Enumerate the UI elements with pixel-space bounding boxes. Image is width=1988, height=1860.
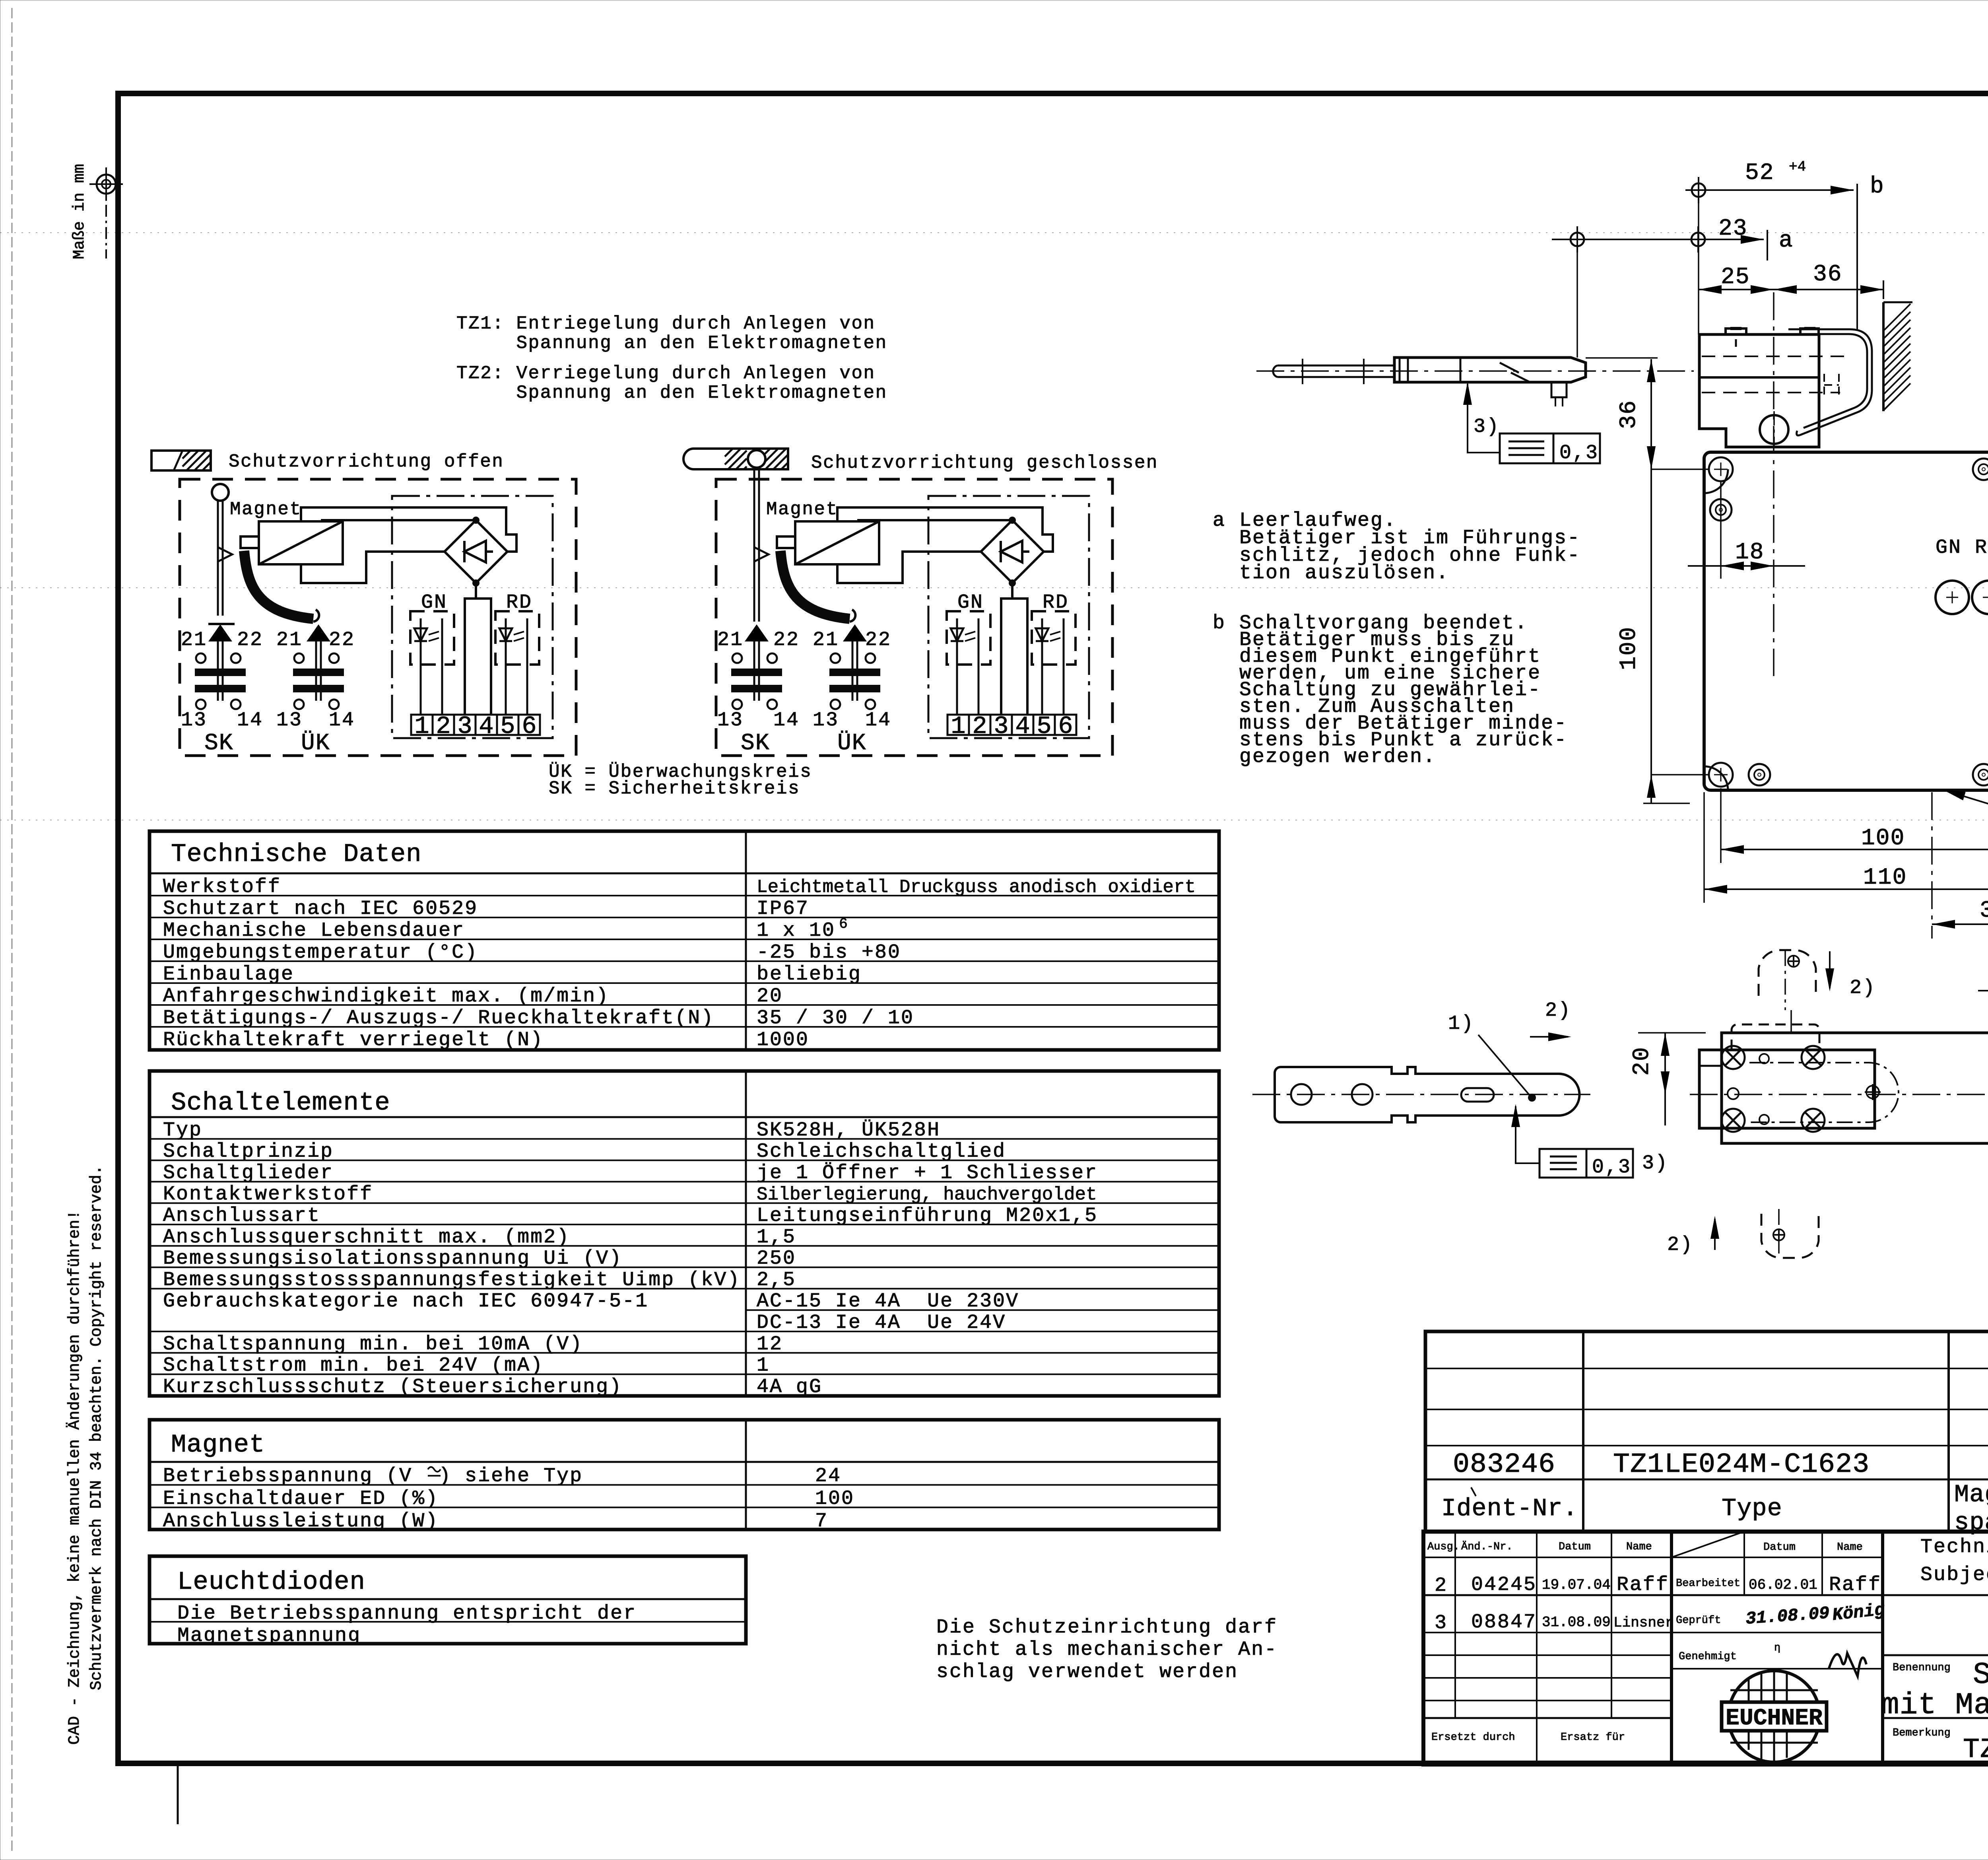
svg-text:ÜK: ÜK bbox=[837, 731, 867, 756]
svg-text:Name: Name bbox=[1837, 1541, 1863, 1553]
svg-text:Raff: Raff bbox=[1617, 1574, 1669, 1596]
svg-text:3): 3) bbox=[1474, 416, 1500, 438]
svg-text:3: 3 bbox=[457, 712, 472, 741]
svg-text:b: b bbox=[1213, 612, 1226, 635]
svg-text:22: 22 bbox=[865, 629, 891, 651]
svg-text:TZ.LE...M-C1623: TZ.LE...M-C1623 bbox=[1963, 1734, 1988, 1766]
svg-text:35: 35 bbox=[1980, 898, 1988, 924]
svg-text:Ident-Nr.: Ident-Nr. bbox=[1441, 1495, 1578, 1523]
svg-text:Schutzvorrichtung offen: Schutzvorrichtung offen bbox=[229, 451, 504, 472]
svg-text:Silberlegierung, hauchvergolde: Silberlegierung, hauchvergoldet bbox=[757, 1184, 1097, 1205]
svg-text:Leichtmetall Druckguss anodisc: Leichtmetall Druckguss anodisch oxidiert bbox=[757, 877, 1196, 898]
svg-text:Geprüft: Geprüft bbox=[1676, 1615, 1721, 1627]
svg-text:22: 22 bbox=[329, 629, 355, 651]
svg-text:13: 13 bbox=[813, 709, 839, 732]
svg-text:Ersetzt durch: Ersetzt durch bbox=[1431, 1732, 1515, 1743]
svg-text:2): 2) bbox=[1850, 977, 1876, 999]
svg-text:Name: Name bbox=[1626, 1541, 1652, 1553]
svg-text:2: 2 bbox=[1435, 1574, 1448, 1597]
svg-text:Subject to technical modificat: Subject to technical modifications bbox=[1920, 1564, 1988, 1586]
svg-text:08847: 08847 bbox=[1471, 1611, 1537, 1634]
svg-text:31.08.09: 31.08.09 bbox=[1542, 1614, 1611, 1631]
svg-text:1: 1 bbox=[951, 712, 965, 741]
svg-text:Schaltelemente: Schaltelemente bbox=[171, 1089, 390, 1118]
svg-text:Anschlussleistung (W): Anschlussleistung (W) bbox=[163, 1510, 439, 1533]
svg-text:4: 4 bbox=[1015, 712, 1030, 741]
svg-text:14: 14 bbox=[329, 709, 355, 732]
svg-text:100: 100 bbox=[1616, 626, 1642, 670]
svg-text:a: a bbox=[1779, 228, 1794, 254]
svg-text:5: 5 bbox=[1037, 712, 1051, 741]
svg-text:Magnetspannung: Magnetspannung bbox=[177, 1625, 361, 1647]
svg-text:ÜK: ÜK bbox=[301, 731, 330, 756]
svg-text:21: 21 bbox=[813, 629, 839, 651]
svg-text:4: 4 bbox=[479, 712, 493, 741]
svg-text:14: 14 bbox=[773, 709, 800, 732]
svg-text:Maße in mm: Maße in mm bbox=[71, 164, 89, 259]
svg-text:52: 52 bbox=[1745, 160, 1774, 186]
svg-text:Die Schutzeinrichtung darf: Die Schutzeinrichtung darf bbox=[936, 1616, 1277, 1639]
svg-text:22: 22 bbox=[773, 629, 800, 651]
svg-text:04245: 04245 bbox=[1471, 1574, 1537, 1596]
svg-text:Bemerkung: Bemerkung bbox=[1893, 1727, 1951, 1739]
svg-text:2): 2) bbox=[1545, 999, 1571, 1022]
svg-text:Schutzvermerk nach DIN 34 beac: Schutzvermerk nach DIN 34 beachten. Copy… bbox=[88, 1165, 106, 1690]
svg-text:Raff: Raff bbox=[1829, 1574, 1881, 1596]
svg-text:2): 2) bbox=[1667, 1234, 1693, 1256]
svg-text:19.07.04: 19.07.04 bbox=[1542, 1577, 1611, 1593]
svg-text:2: 2 bbox=[436, 712, 450, 741]
svg-text:06.02.01: 06.02.01 bbox=[1749, 1577, 1817, 1593]
svg-text:SK = Sicherheitskreis: SK = Sicherheitskreis bbox=[549, 778, 800, 799]
svg-text:3: 3 bbox=[994, 712, 1008, 741]
svg-text:Rückhaltekraft verriegelt (N): Rückhaltekraft verriegelt (N) bbox=[163, 1029, 544, 1051]
svg-text:6: 6 bbox=[1058, 712, 1073, 741]
svg-text:6: 6 bbox=[522, 712, 536, 741]
svg-text:EUCHNER: EUCHNER bbox=[1726, 1706, 1823, 1732]
svg-text:110: 110 bbox=[1863, 865, 1907, 891]
svg-text:Änd.-Nr.: Änd.-Nr. bbox=[1461, 1541, 1513, 1553]
svg-text:20: 20 bbox=[1629, 1046, 1655, 1076]
svg-text:21: 21 bbox=[276, 629, 303, 651]
svg-text:18: 18 bbox=[1735, 540, 1765, 566]
svg-text:3): 3) bbox=[1642, 1152, 1668, 1175]
svg-text:Kurzschlussschutz (Steuersiche: Kurzschlussschutz (Steuersicherung) bbox=[163, 1376, 622, 1398]
svg-text:GN RD: GN RD bbox=[1936, 536, 1988, 559]
svg-text:21: 21 bbox=[717, 629, 744, 651]
svg-text:Leuchtdioden: Leuchtdioden bbox=[177, 1568, 365, 1597]
svg-text:Ersatz für: Ersatz für bbox=[1561, 1732, 1625, 1743]
svg-text:Spannung an den Elektromagnete: Spannung an den Elektromagneten bbox=[456, 383, 887, 403]
svg-text:23: 23 bbox=[1718, 216, 1748, 242]
svg-text:b: b bbox=[1870, 174, 1885, 200]
svg-text:36: 36 bbox=[1616, 400, 1642, 429]
svg-text:0,3: 0,3 bbox=[1559, 442, 1599, 465]
svg-text:36: 36 bbox=[1813, 262, 1842, 288]
svg-text:4A qG: 4A qG bbox=[757, 1376, 822, 1398]
svg-text:13: 13 bbox=[717, 709, 744, 732]
svg-text:Technische Daten: Technische Daten bbox=[171, 840, 422, 869]
svg-text:14: 14 bbox=[865, 709, 891, 732]
svg-text:SK: SK bbox=[741, 731, 770, 756]
svg-text:Magnet: Magnet bbox=[230, 499, 302, 520]
svg-text:Technische Änderungen vorbehal: Technische Änderungen vorbehalten bbox=[1920, 1536, 1988, 1559]
svg-text:Benennung: Benennung bbox=[1893, 1662, 1951, 1674]
svg-text:η: η bbox=[1774, 1642, 1780, 1654]
svg-text:14: 14 bbox=[237, 709, 263, 732]
svg-text:schlag verwendet werden: schlag verwendet werden bbox=[936, 1661, 1238, 1683]
svg-text:1): 1) bbox=[1448, 1013, 1474, 1035]
svg-text:gezogen werden.: gezogen werden. bbox=[1239, 746, 1436, 768]
svg-text:Magnet-: Magnet- bbox=[1954, 1481, 1988, 1509]
svg-text:25: 25 bbox=[1721, 264, 1750, 290]
svg-text:6: 6 bbox=[839, 916, 848, 932]
svg-text:Datum: Datum bbox=[1763, 1541, 1796, 1553]
svg-text:Type: Type bbox=[1722, 1495, 1782, 1523]
svg-text:13: 13 bbox=[181, 709, 207, 732]
svg-text:TZ2: Verriegelung durch Anlege: TZ2: Verriegelung durch Anlegen von bbox=[456, 363, 876, 384]
svg-text:Ausg.: Ausg. bbox=[1427, 1541, 1460, 1553]
svg-text:2: 2 bbox=[972, 712, 987, 741]
svg-text:Sicherheitsschalter: Sicherheitsschalter bbox=[1973, 1658, 1988, 1692]
svg-text:13: 13 bbox=[276, 709, 303, 732]
svg-text:TZ1: Entriegelung durch Anlege: TZ1: Entriegelung durch Anlegen von bbox=[456, 313, 876, 334]
svg-text:Spannung an den Elektromagnete: Spannung an den Elektromagneten bbox=[456, 333, 887, 354]
svg-text:tion auszulösen.: tion auszulösen. bbox=[1239, 562, 1449, 585]
svg-text:Linsner: Linsner bbox=[1613, 1615, 1673, 1631]
svg-text:3: 3 bbox=[1435, 1612, 1448, 1635]
svg-text:Schutzvorrichtung geschlossen: Schutzvorrichtung geschlossen bbox=[811, 453, 1158, 473]
svg-text:Magnet: Magnet bbox=[766, 499, 838, 520]
svg-text:a: a bbox=[1213, 509, 1226, 532]
svg-text:Genehmigt: Genehmigt bbox=[1679, 1651, 1737, 1663]
svg-text:Gebrauchskategorie nach IEC 60: Gebrauchskategorie nach IEC 60947-5-1 bbox=[163, 1290, 648, 1313]
svg-text:1000: 1000 bbox=[757, 1029, 809, 1051]
svg-text:100: 100 bbox=[1861, 826, 1905, 851]
svg-text:nicht als mechanischer An-: nicht als mechanischer An- bbox=[936, 1638, 1277, 1661]
svg-text:CAD - Zeichnung, keine manuell: CAD - Zeichnung, keine manuellen Änderun… bbox=[66, 1210, 84, 1745]
svg-text:Magnet: Magnet bbox=[171, 1431, 265, 1460]
svg-text:21: 21 bbox=[181, 629, 207, 651]
svg-text:TZ1LE024M-C1623: TZ1LE024M-C1623 bbox=[1613, 1449, 1870, 1481]
svg-text:22: 22 bbox=[237, 629, 263, 651]
svg-text:+4: +4 bbox=[1789, 159, 1806, 175]
svg-text:0,3: 0,3 bbox=[1592, 1156, 1631, 1179]
svg-text:7: 7 bbox=[815, 1510, 828, 1533]
svg-text:5: 5 bbox=[500, 712, 515, 741]
svg-text:083246: 083246 bbox=[1453, 1449, 1555, 1481]
svg-text:1: 1 bbox=[414, 712, 429, 741]
svg-text:Datum: Datum bbox=[1559, 1541, 1591, 1553]
svg-text:Bearbeitet: Bearbeitet bbox=[1676, 1578, 1740, 1590]
svg-text:SK: SK bbox=[204, 731, 234, 756]
